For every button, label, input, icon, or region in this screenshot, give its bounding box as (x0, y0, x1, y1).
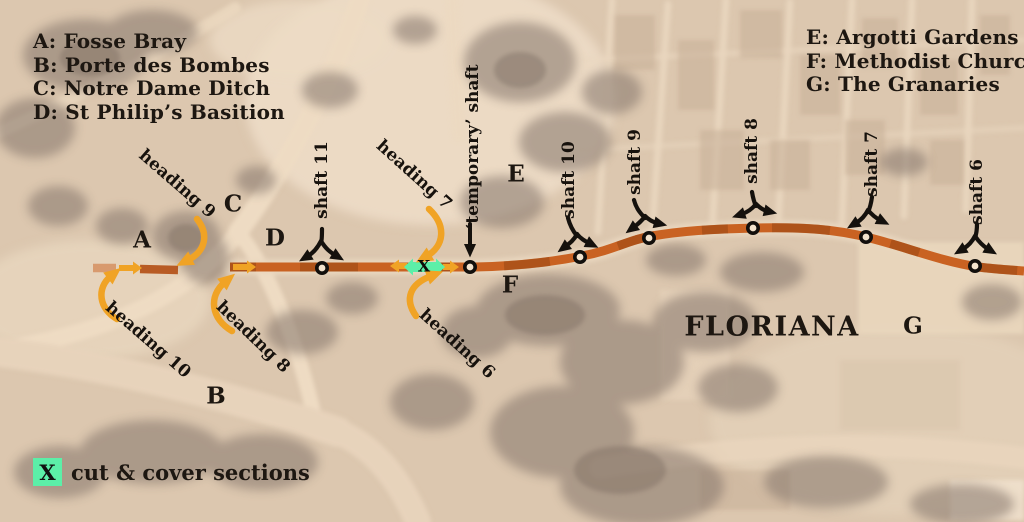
shaft-11-marker (317, 263, 327, 273)
floriana-tunnel-map: A: Fosse Bray B: Porte des Bombes C: Not… (0, 0, 1024, 522)
shaft-7-marker (861, 232, 871, 242)
landmark-b: B (206, 383, 225, 410)
shaft-10-label: shaft 10 (559, 141, 579, 219)
shaft-9-label: shaft 9 (625, 129, 645, 195)
heading-9-arrow-icon (188, 219, 204, 260)
shaft-9-arrow-icon (634, 200, 657, 227)
shaft-8-label: shaft 8 (742, 118, 762, 184)
landmark-d: D (265, 225, 285, 252)
tunnel-route (93, 228, 1024, 271)
shaft-10-marker (575, 252, 585, 262)
shaft-6-label: shaft 6 (967, 159, 987, 225)
landmark-e: E (507, 161, 525, 188)
shaft-6-marker (970, 261, 980, 271)
legend-item: A: Fosse Bray (33, 30, 285, 54)
legend-item: F: Methodist Church (806, 50, 1024, 74)
landmark-g: G (903, 313, 923, 340)
legend-right: E: Argotti Gardens F: Methodist Church G… (806, 26, 1024, 97)
cut-cover-x-label: X (418, 257, 430, 276)
cut-cover-legend: X cut & cover sections (33, 458, 310, 486)
legend-item: E: Argotti Gardens (806, 26, 1024, 50)
legend-item: C: Notre Dame Ditch (33, 77, 285, 101)
shaft-7-label: shaft 7 (862, 131, 882, 197)
landmark-f: F (502, 272, 518, 299)
city-label: FLORIANA (684, 312, 859, 343)
cut-cover-swatch: X (33, 458, 62, 486)
legend-item: G: The Granaries (806, 73, 1024, 97)
temporary-shaft-label: ‘temporary’ shaft (463, 64, 483, 229)
shaft-8-marker (748, 223, 758, 233)
shaft-11-label: shaft 11 (312, 141, 332, 219)
shaft-7-arrow-icon (856, 197, 880, 223)
shaft-9-marker (644, 233, 654, 243)
cut-cover-legend-label: cut & cover sections (71, 460, 310, 485)
shaft-8-arrow-icon (742, 192, 767, 214)
landmark-c: C (224, 191, 242, 218)
legend-left: A: Fosse Bray B: Porte des Bombes C: Not… (33, 30, 285, 124)
shaft-10-arrow-icon (566, 218, 589, 246)
temporary-shaft-marker (465, 262, 475, 272)
legend-item: B: Porte des Bombes (33, 54, 285, 78)
landmark-a: A (133, 227, 151, 254)
legend-item: D: St Philip’s Basition (33, 101, 285, 125)
heading-7-arrow-icon (427, 209, 441, 256)
shaft-6-arrow-icon (963, 224, 988, 249)
shaft-11-arrow-icon (308, 229, 335, 256)
